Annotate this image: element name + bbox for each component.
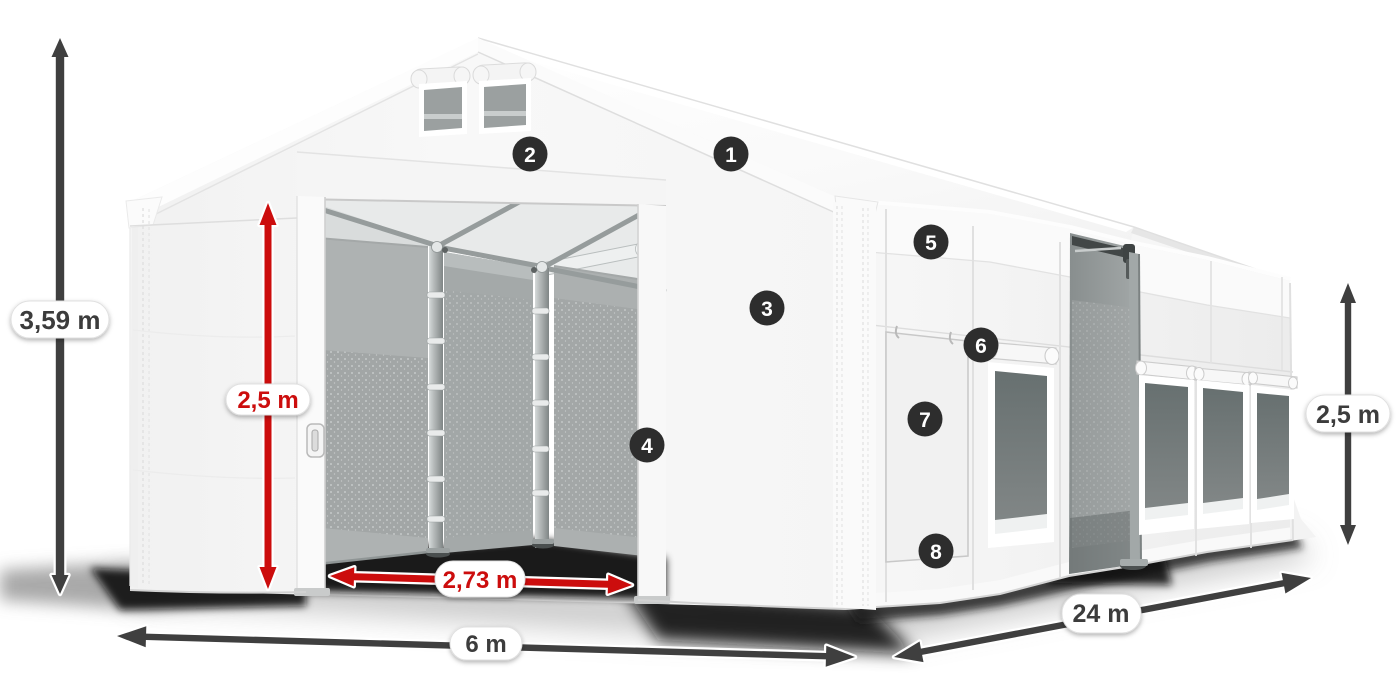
svg-text:2: 2 (524, 144, 536, 167)
svg-text:3,59 m: 3,59 m (20, 305, 101, 335)
svg-text:8: 8 (930, 541, 942, 564)
svg-text:7: 7 (919, 409, 931, 432)
svg-text:4: 4 (641, 435, 653, 458)
svg-text:6 m: 6 m (465, 631, 506, 658)
svg-text:3: 3 (761, 298, 773, 321)
svg-text:5: 5 (925, 232, 937, 255)
svg-text:6: 6 (975, 335, 987, 358)
svg-text:2,5 m: 2,5 m (237, 387, 298, 414)
svg-text:24 m: 24 m (1073, 600, 1130, 628)
svg-text:1: 1 (725, 144, 737, 167)
svg-text:2,73 m: 2,73 m (443, 567, 518, 594)
svg-text:2,5 m: 2,5 m (1316, 401, 1380, 429)
